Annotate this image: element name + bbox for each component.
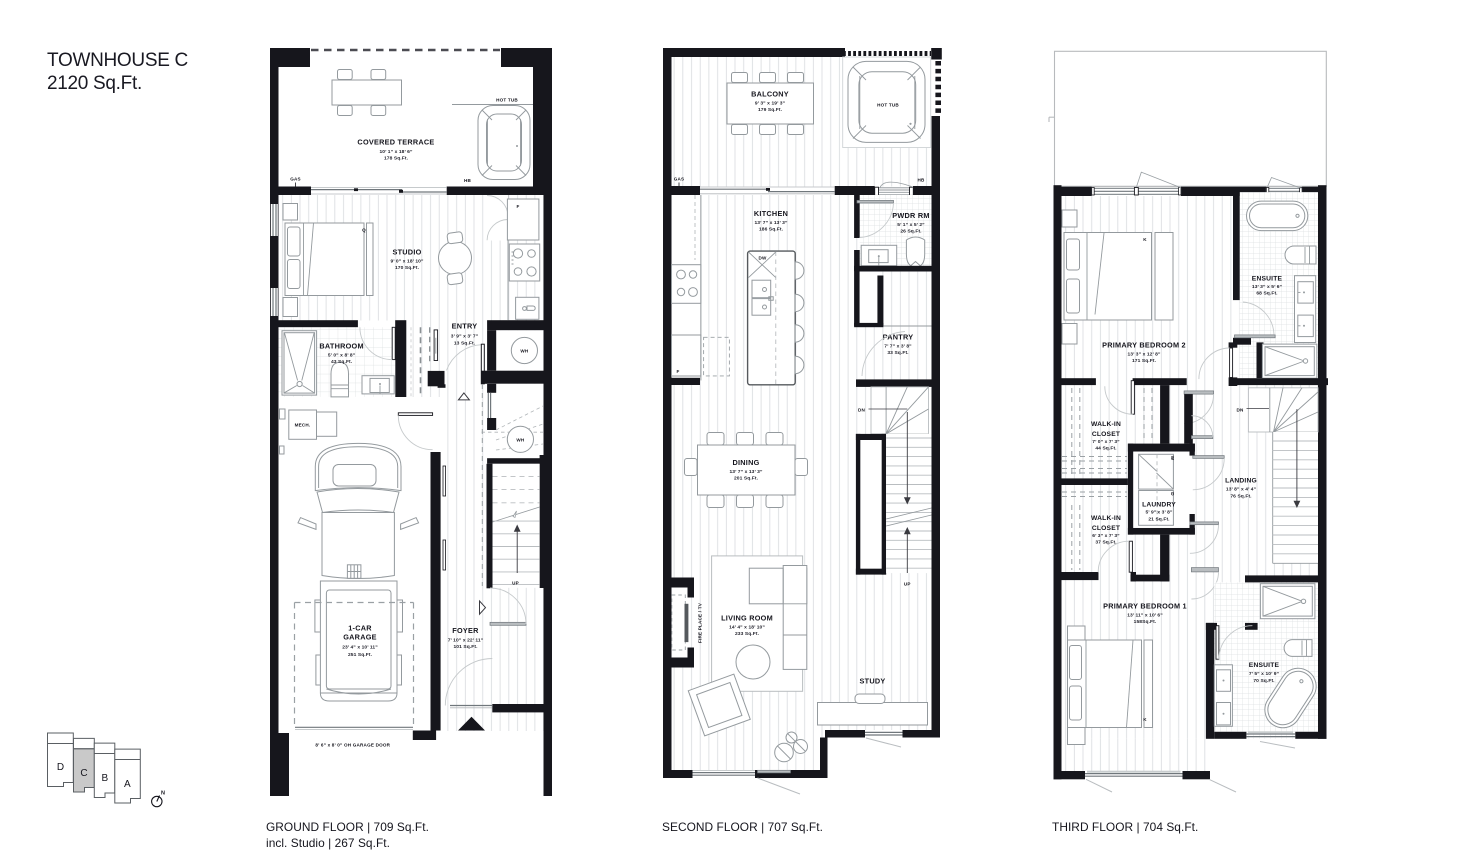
svg-text:DINING: DINING [732, 458, 759, 467]
svg-text:UP: UP [904, 582, 911, 587]
svg-text:CLOSET: CLOSET [1092, 431, 1121, 438]
svg-text:BALCONY: BALCONY [751, 90, 789, 99]
svg-text:21 Sq.Ft.: 21 Sq.Ft. [1148, 517, 1170, 523]
svg-text:7’ 0” x 7’ 3”: 7’ 0” x 7’ 3” [1092, 439, 1120, 445]
svg-text:D: D [57, 762, 64, 773]
svg-text:13’ 11” x 10’ 6”: 13’ 11” x 10’ 6” [1127, 613, 1163, 619]
svg-text:178 Sq.Ft.: 178 Sq.Ft. [384, 156, 409, 162]
svg-text:WH: WH [516, 437, 525, 442]
svg-text:GAS: GAS [290, 177, 301, 182]
svg-text:9’ 0” x 18’ 10”: 9’ 0” x 18’ 10” [390, 259, 423, 265]
svg-text:5’ 1” x 5’ 2”: 5’ 1” x 5’ 2” [897, 222, 925, 228]
svg-text:SECOND FLOOR | 707 Sq.Ft.: SECOND FLOOR | 707 Sq.Ft. [662, 820, 823, 834]
svg-text:186 Sq.Ft.: 186 Sq.Ft. [759, 227, 784, 233]
svg-text:TOWNHOUSE C: TOWNHOUSE C [47, 50, 188, 71]
svg-text:ENSUITE: ENSUITE [1252, 276, 1283, 283]
svg-text:44 Sq.Ft.: 44 Sq.Ft. [1095, 446, 1117, 452]
svg-text:7’ 5” x 10’ 9”: 7’ 5” x 10’ 9” [1249, 671, 1280, 677]
svg-text:HOT TUB: HOT TUB [496, 98, 518, 103]
svg-text:STUDIO: STUDIO [392, 248, 421, 257]
svg-text:C: C [80, 768, 87, 779]
svg-text:2120 Sq.Ft.: 2120 Sq.Ft. [47, 73, 142, 94]
svg-text:F: F [516, 204, 519, 209]
svg-text:DN: DN [1236, 408, 1244, 413]
svg-text:33 Sq.Ft.: 33 Sq.Ft. [887, 350, 909, 356]
svg-text:13’ 3” x 12’ 8”: 13’ 3” x 12’ 8” [1127, 352, 1160, 358]
svg-text:MECH.: MECH. [295, 423, 311, 428]
svg-text:68 Sq.Ft.: 68 Sq.Ft. [1256, 291, 1278, 297]
svg-text:70 Sq.Ft.: 70 Sq.Ft. [1253, 678, 1275, 684]
svg-text:13’ 8” x 4’ 4”: 13’ 8” x 4’ 4” [1226, 487, 1257, 493]
svg-text:6’ 3” x 7’ 3”: 6’ 3” x 7’ 3” [1092, 533, 1120, 539]
svg-text:LANDING: LANDING [1225, 478, 1257, 485]
svg-text:43 Sq.Ft.: 43 Sq.Ft. [331, 359, 353, 365]
svg-text:WALK-IN: WALK-IN [1091, 515, 1121, 522]
svg-text:158Sq.Ft.: 158Sq.Ft. [1134, 619, 1157, 625]
svg-text:14’ 4” x 18’ 10”: 14’ 4” x 18’ 10” [729, 625, 765, 631]
svg-text:26 Sq.Ft.: 26 Sq.Ft. [900, 229, 922, 235]
svg-text:W: W [1170, 456, 1175, 461]
svg-text:B: B [101, 773, 108, 784]
svg-text:ENTRY: ENTRY [452, 322, 478, 331]
svg-text:GROUND FLOOR | 709 Sq.Ft.: GROUND FLOOR | 709 Sq.Ft. [266, 820, 429, 834]
svg-text:37 Sq.Ft.: 37 Sq.Ft. [1095, 540, 1117, 546]
svg-text:101 Sq.Ft.: 101 Sq.Ft. [453, 644, 478, 650]
svg-text:LAUNDRY: LAUNDRY [1142, 502, 1176, 509]
svg-text:3’ 9” x 3’ 7”: 3’ 9” x 3’ 7” [451, 333, 479, 339]
svg-text:13 Sq.Ft.: 13 Sq.Ft. [454, 341, 476, 347]
svg-text:1-CAR: 1-CAR [348, 624, 372, 633]
svg-text:STUDY: STUDY [860, 677, 886, 686]
svg-text:PWDR RM: PWDR RM [892, 211, 929, 220]
svg-text:CLOSET: CLOSET [1092, 525, 1121, 532]
svg-text:DW: DW [758, 256, 767, 261]
svg-text:HB: HB [464, 178, 472, 183]
svg-text:9’ 3” x 19’ 3”: 9’ 3” x 19’ 3” [755, 101, 786, 107]
svg-text:GAS: GAS [674, 177, 685, 182]
svg-text:7’ 10” x 22’ 11”: 7’ 10” x 22’ 11” [448, 638, 484, 644]
svg-text:KITCHEN: KITCHEN [754, 209, 788, 218]
svg-text:THIRD FLOOR | 704 Sq.Ft.: THIRD FLOOR | 704 Sq.Ft. [1052, 820, 1198, 834]
svg-text:F: F [676, 369, 679, 374]
svg-text:PANTRY: PANTRY [883, 333, 914, 342]
svg-text:D: D [1170, 492, 1175, 496]
svg-text:BATHROOM: BATHROOM [319, 342, 363, 351]
svg-text:170 Sq.Ft.: 170 Sq.Ft. [395, 265, 420, 271]
svg-text:171 Sq.Ft.: 171 Sq.Ft. [1132, 358, 1157, 364]
svg-text:UP: UP [512, 581, 519, 586]
svg-text:WH: WH [520, 349, 529, 354]
svg-text:5’ 0” x 8’ 8”: 5’ 0” x 8’ 8” [328, 353, 356, 359]
svg-text:179 Sq.Ft.: 179 Sq.Ft. [758, 107, 783, 113]
svg-text:251 Sq.Ft.: 251 Sq.Ft. [348, 652, 373, 658]
svg-text:FOYER: FOYER [452, 626, 479, 635]
svg-text:PRIMARY BEDROOM 2: PRIMARY BEDROOM 2 [1102, 341, 1186, 350]
svg-text:233 Sq.Ft.: 233 Sq.Ft. [735, 631, 760, 637]
svg-text:DN: DN [858, 408, 866, 413]
svg-text:HB: HB [917, 178, 925, 183]
svg-text:8’ 6” x 8’ 0” OH GARAGE DOOR: 8’ 6” x 8’ 0” OH GARAGE DOOR [315, 743, 390, 748]
svg-text:N: N [161, 791, 165, 797]
svg-text:incl. Studio | 267 Sq.Ft.: incl. Studio | 267 Sq.Ft. [266, 836, 390, 850]
svg-text:K: K [1143, 237, 1147, 242]
svg-text:FIRE PLACE / TV: FIRE PLACE / TV [698, 602, 703, 643]
svg-text:23’ 4” x 10’ 11”: 23’ 4” x 10’ 11” [342, 645, 378, 651]
svg-text:COVERED TERRACE: COVERED TERRACE [357, 138, 434, 147]
svg-text:WALK-IN: WALK-IN [1091, 421, 1121, 428]
svg-text:76 Sq.Ft.: 76 Sq.Ft. [1230, 494, 1252, 500]
svg-text:PRIMARY BEDROOM 1: PRIMARY BEDROOM 1 [1103, 602, 1187, 611]
svg-text:13’ 7” x 13’ 3”: 13’ 7” x 13’ 3” [729, 469, 762, 475]
svg-text:HOT TUB: HOT TUB [877, 103, 899, 108]
svg-text:10’ 1” x 18’ 6”: 10’ 1” x 18’ 6” [379, 149, 412, 155]
svg-text:Q: Q [362, 228, 366, 233]
svg-text:A: A [124, 779, 131, 790]
svg-text:201 Sq.Ft.: 201 Sq.Ft. [734, 476, 759, 482]
svg-text:GARAGE: GARAGE [343, 633, 377, 642]
svg-text:7’ 7” x 3’ 8”: 7’ 7” x 3’ 8” [884, 344, 912, 350]
svg-text:K: K [1143, 717, 1147, 722]
svg-text:ENSUITE: ENSUITE [1249, 662, 1280, 669]
svg-text:5’ 9” x 3’ 8”: 5’ 9” x 3’ 8” [1145, 510, 1172, 516]
svg-text:13’ 3” x 5’ 6”: 13’ 3” x 5’ 6” [1252, 284, 1283, 290]
svg-text:LIVING ROOM: LIVING ROOM [721, 614, 773, 623]
svg-text:13’ 7” x 13’ 3”: 13’ 7” x 13’ 3” [754, 220, 787, 226]
